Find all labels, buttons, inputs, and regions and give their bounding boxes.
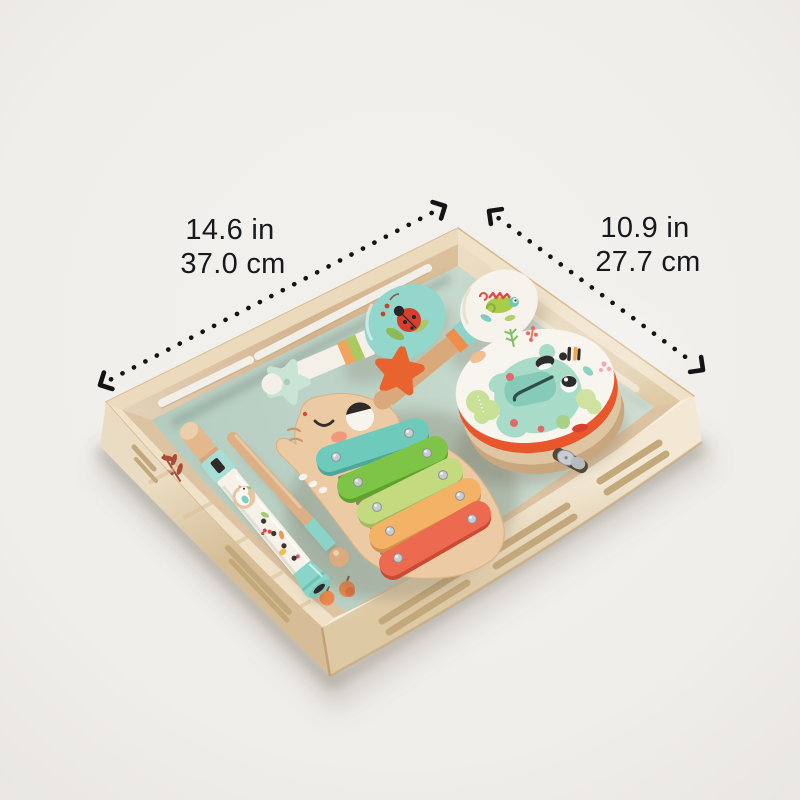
product-photo-svg: 14.6 in 37.0 cm 10.9 in 27.7 cm [0, 0, 800, 800]
white-maraca-handle-cap [374, 391, 393, 410]
teal-maraca-handle-cap [262, 374, 283, 395]
width-cm-label: 37.0 cm [180, 248, 285, 280]
product-image: 14.6 in 37.0 cm 10.9 in 27.7 cm [0, 0, 800, 800]
width-inches-label: 14.6 in [185, 214, 274, 246]
depth-inches-label: 10.9 in [600, 212, 689, 244]
depth-cm-label: 27.7 cm [595, 246, 700, 278]
drumstick-ball [329, 547, 349, 567]
